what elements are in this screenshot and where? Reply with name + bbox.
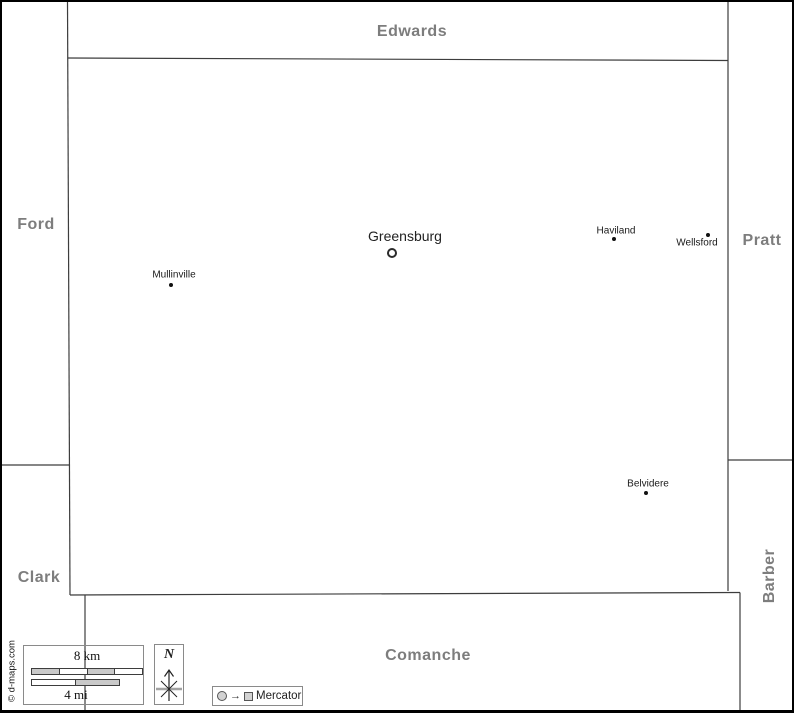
north-arrow-icon [155,665,183,705]
city-label-mullinville: Mullinville [152,270,195,281]
copyright-text: © d-maps.com [7,640,18,702]
scale-mi-bar [31,679,120,686]
city-label-greensburg: Greensburg [368,228,442,244]
projection-globe-icon [217,691,227,701]
projection-square-icon [244,692,253,701]
region-label-comanche: Comanche [385,647,471,665]
region-label-pratt: Pratt [743,232,782,250]
city-label-belvidere: Belvidere [627,479,669,490]
scale-segment [32,680,75,685]
scale-segment [75,680,119,685]
boundary-lines [2,2,794,713]
boundary-north [68,58,728,61]
north-indicator-box: N [154,644,184,705]
projection-label: Mercator [256,690,301,702]
region-label-barber: Barber [761,549,779,604]
scale-km-bar [31,668,143,675]
city-marker-dot-mullinville [169,283,173,287]
city-label-haviland: Haviland [597,226,636,237]
region-label-ford: Ford [17,216,55,234]
city-marker-dot-wellsford [706,233,710,237]
boundary-south [70,593,740,596]
north-label: N [164,647,174,663]
boundary-west [68,2,71,595]
city-marker-dot-belvidere [644,491,648,495]
map-canvas: Edwards Ford Pratt Clark Barber Comanche… [0,0,794,713]
scale-bar-box: 8 km 4 mi [23,645,144,705]
scale-mi-label: 4 mi [64,687,87,703]
region-label-edwards: Edwards [377,23,447,41]
projection-arrow-icon: → [230,691,241,702]
scale-km-label: 8 km [74,648,100,664]
region-label-clark: Clark [18,569,61,587]
scale-segment [32,669,59,674]
city-marker-dot-haviland [612,237,616,241]
city-marker-ring-greensburg [387,248,397,258]
scale-segment [114,669,142,674]
city-label-wellsford: Wellsford [676,238,718,249]
projection-legend: → Mercator [212,686,303,706]
scale-segment [59,669,87,674]
scale-segment [87,669,115,674]
